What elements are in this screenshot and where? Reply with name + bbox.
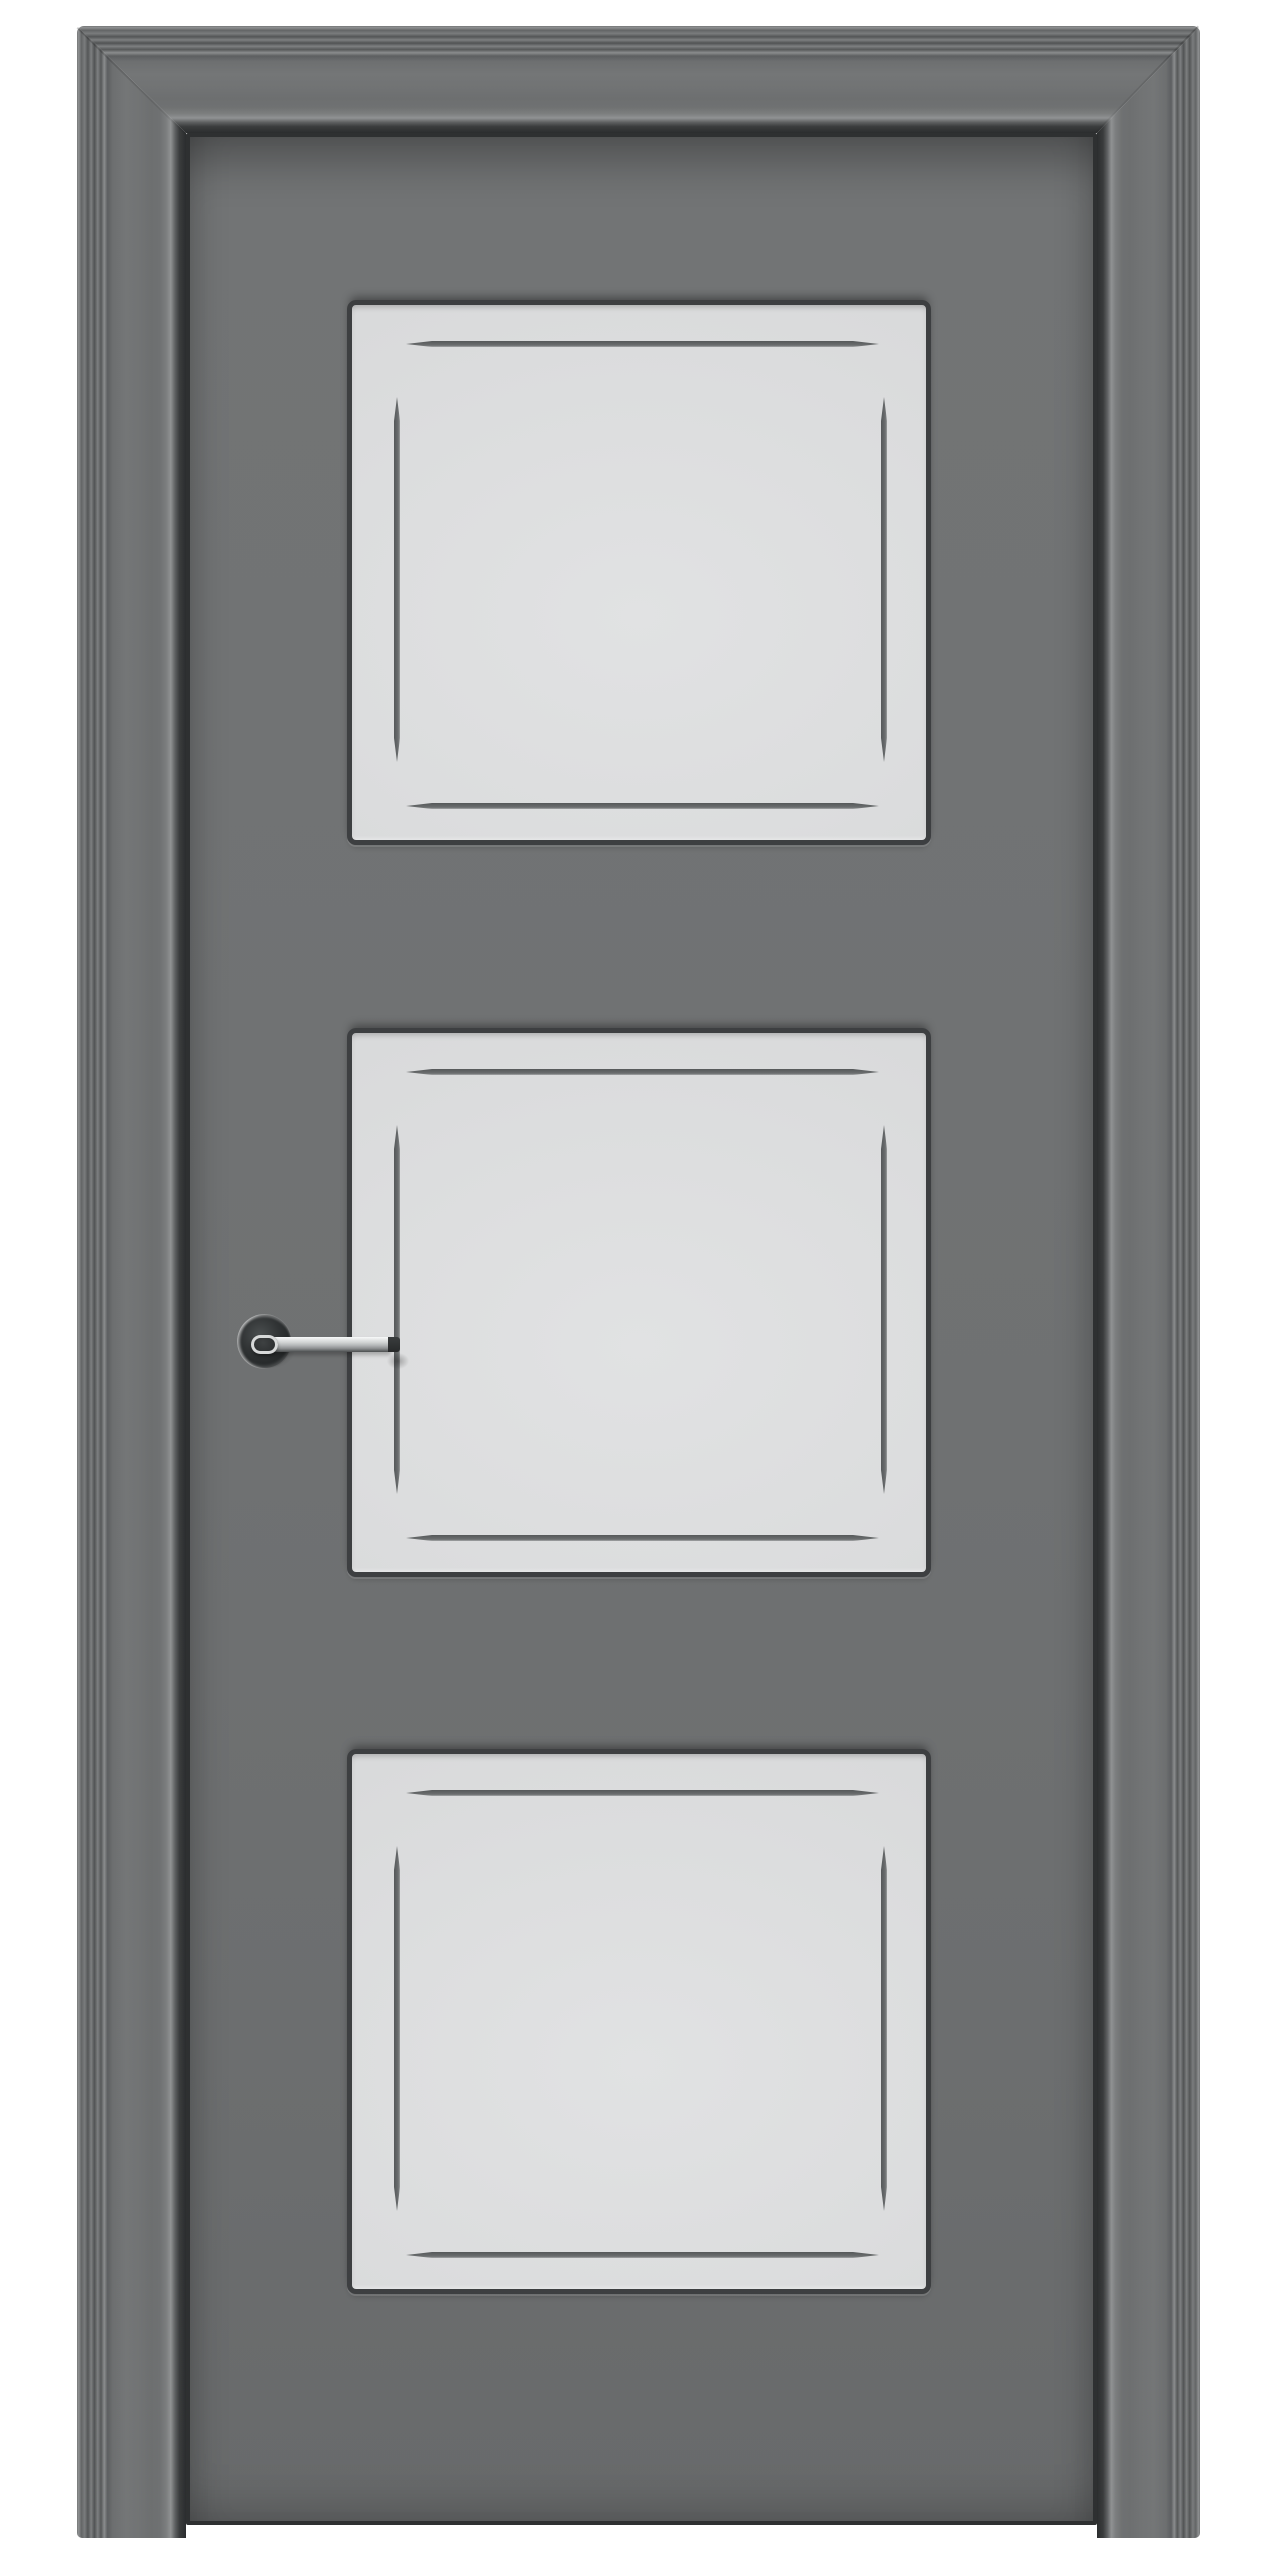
door-render-scene: [0, 0, 1280, 2560]
door-casing-left: [77, 26, 186, 2538]
panel-groove-left: [394, 1125, 400, 1494]
panel-groove-top: [406, 1790, 879, 1796]
panel-groove-right: [881, 1846, 887, 2211]
panel-groove-bottom: [406, 803, 879, 809]
door-panel-top: [347, 300, 931, 845]
panel-groove-left: [394, 1846, 400, 2211]
panel-groove-left: [394, 397, 400, 762]
handle-lever-tip-shadow: [383, 1350, 413, 1372]
door-panel-bottom: [347, 1749, 931, 2294]
panel-groove-right: [881, 1125, 887, 1494]
panel-groove-top: [406, 341, 879, 347]
door-casing-top: [77, 26, 1200, 133]
handle-lever-cap: [251, 1335, 278, 1354]
panel-groove-top: [406, 1069, 879, 1075]
panel-groove-right: [881, 397, 887, 762]
door-panel-middle: [347, 1028, 931, 1577]
door-casing-right: [1097, 26, 1200, 2538]
panel-groove-bottom: [406, 2252, 879, 2258]
panel-groove-bottom: [406, 1535, 879, 1541]
